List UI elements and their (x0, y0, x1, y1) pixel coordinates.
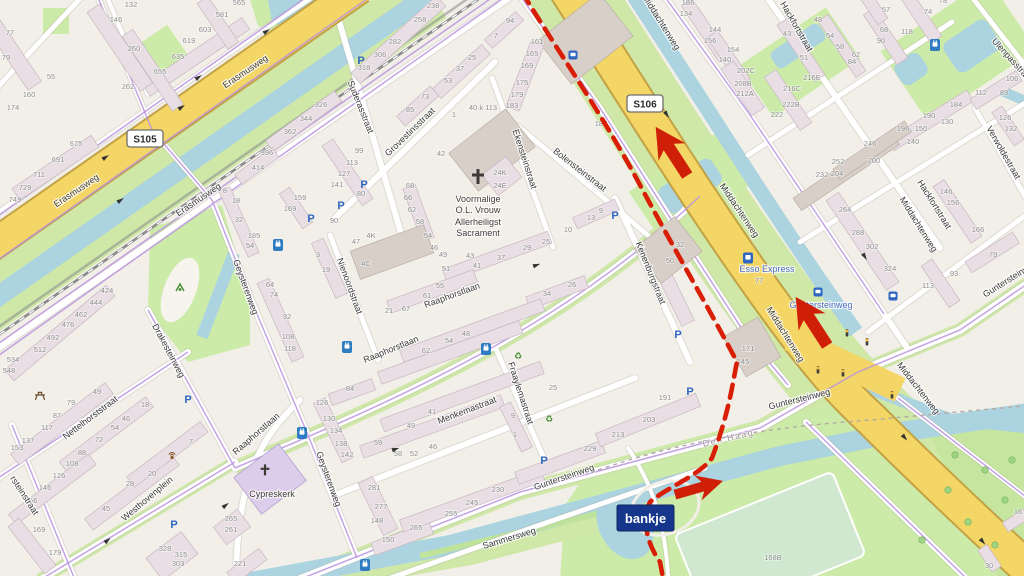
house-number: 55 (436, 281, 444, 290)
house-number: 41 (473, 261, 481, 270)
house-number: 144 (709, 25, 722, 34)
house-number: 619 (183, 36, 196, 45)
house-number: 34 (543, 289, 551, 298)
parking-icon: P (540, 455, 547, 467)
charging-plug (345, 344, 350, 348)
playground-icon-dot (179, 288, 182, 291)
house-number: 156 (704, 36, 717, 45)
shield-text: S106 (633, 100, 657, 111)
house-number: 179 (49, 548, 62, 557)
traffic-light-lamp (866, 339, 869, 342)
house-number: 255 (445, 509, 458, 518)
charging-prong (279, 240, 280, 242)
house-number: 324 (884, 264, 897, 273)
traffic-light-icon (817, 366, 820, 374)
bankje-label-text: bankje (625, 511, 666, 526)
charging-station-icon (360, 559, 370, 571)
tree-icon (952, 452, 958, 458)
house-number: 216C (783, 84, 802, 93)
house-number: 77 (6, 28, 14, 37)
house-number: 154 (727, 45, 740, 54)
house-number: 47 (352, 237, 360, 246)
house-number: 9 (599, 206, 603, 215)
house-number: 117 (41, 423, 53, 432)
house-number: 37 (497, 253, 505, 262)
house-number: 221 (234, 559, 247, 568)
house-number: 565 (233, 0, 246, 7)
house-number: 729 (19, 183, 32, 192)
charging-prong (300, 428, 301, 430)
parking-icon: P (360, 179, 367, 191)
house-number: 260 (128, 44, 141, 53)
house-number: 476 (62, 320, 75, 329)
house-number: 72 (95, 435, 103, 444)
house-number: 46 (429, 442, 437, 451)
house-number: 137 (22, 436, 35, 445)
charging-prong (484, 344, 485, 346)
house-number: 169 (284, 204, 297, 213)
house-number: 196 (897, 124, 910, 133)
house-number: 140 (719, 55, 732, 64)
house-number: 179 (511, 90, 524, 99)
house-number: 140 (907, 137, 920, 146)
house-number: 281 (368, 483, 381, 492)
map-canvas[interactable]: Den Haag 5655816036196356556756917117297… (0, 0, 1024, 576)
charging-station-icon (481, 343, 491, 355)
house-number: 126 (316, 398, 329, 407)
house-number: 362 (284, 127, 297, 136)
house-number: 153 (11, 443, 24, 452)
traffic-light-icon (866, 338, 869, 346)
house-number: 113 (346, 158, 358, 167)
charging-plug (276, 242, 281, 246)
house-number: 59 (374, 438, 382, 447)
house-number: 258 (414, 15, 427, 24)
house-number: 29 (523, 243, 531, 252)
house-number: 183 (506, 101, 519, 110)
house-number: 50 (666, 256, 674, 265)
house-number: 99 (355, 146, 363, 155)
house-number: 88 (78, 448, 86, 457)
house-number: 174 (7, 103, 20, 112)
house-number: 77 (755, 276, 763, 285)
house-number: 138 (335, 439, 348, 448)
house-number: 166 (972, 225, 985, 234)
house-number: 444 (90, 298, 103, 307)
house-number: 168B (764, 553, 782, 562)
house-number: 46 (122, 414, 130, 423)
house-number: 282 (389, 37, 402, 46)
house-number: 74 (270, 290, 278, 299)
house-number: 25 (542, 237, 550, 246)
house-number: 25 (468, 53, 476, 62)
house-number: 58 (416, 217, 424, 226)
house-number: 691 (52, 155, 65, 164)
house-number: 675 (70, 139, 83, 148)
house-number: 261 (225, 525, 238, 534)
charging-plug (933, 42, 938, 46)
fuel-station-icon (743, 253, 753, 264)
house-number: 21 (385, 306, 393, 315)
tree-icon (992, 542, 998, 548)
house-number: 462 (75, 310, 88, 319)
house-number: 344 (300, 114, 313, 123)
house-number: 175 (516, 78, 529, 87)
house-number: 24K (493, 168, 506, 177)
house-number: 93 (950, 269, 958, 278)
house-number: 79 (989, 250, 997, 259)
house-number: 37 (456, 64, 464, 73)
house-number: 265 (410, 523, 423, 532)
house-number: 142 (341, 450, 354, 459)
house-number: 62 (408, 205, 416, 214)
charging-plug (363, 562, 368, 566)
route-shield-s105: S105 (127, 130, 163, 147)
house-number: 200 (868, 156, 881, 165)
house-number: 208B (734, 79, 752, 88)
church-name-line: O.L. Vrouw (456, 205, 501, 215)
parking-icon: P (170, 519, 177, 531)
parking-icon: P (674, 329, 681, 341)
bus-glyph (890, 294, 895, 297)
charging-prong (487, 344, 488, 346)
house-number: 78 (939, 0, 947, 5)
house-number: 57 (882, 5, 890, 14)
house-number: 90 (330, 216, 338, 225)
house-number: 51 (442, 264, 450, 273)
house-number: 51 (800, 53, 808, 62)
tree-icon (945, 487, 951, 493)
house-number: 229 (584, 444, 597, 453)
house-number: 48 (462, 329, 470, 338)
parking-icon: P (611, 210, 618, 222)
house-number: 16 (1014, 507, 1022, 516)
house-number: 68 (406, 181, 414, 190)
house-number: 40 k 113 (469, 103, 497, 112)
house-number: 25 (549, 383, 557, 392)
house-number: 62 (422, 346, 430, 355)
house-number: 216E (803, 73, 821, 82)
house-number: 43 (466, 251, 474, 260)
house-number: 202C (737, 66, 756, 75)
house-number: 49 (407, 421, 415, 430)
house-number: 118 (901, 27, 913, 36)
house-number: 326 (315, 100, 328, 109)
house-number: 19 (322, 265, 330, 274)
house-number: 87 (53, 411, 61, 420)
house-number: 190 (923, 111, 936, 120)
parking-icon: P (307, 213, 314, 225)
house-number: 204 (831, 169, 844, 178)
tree-icon (982, 467, 988, 473)
house-number: 222 (771, 110, 784, 119)
house-number: 548 (3, 366, 16, 375)
traffic-light-icon (846, 329, 849, 337)
house-number: 24E (493, 181, 506, 190)
house-number: 79 (67, 398, 75, 407)
bus-stop-icon (889, 292, 898, 301)
house-number: 49 (439, 250, 447, 259)
map-screenshot: Den Haag 5655816036196356556756917117297… (0, 0, 1024, 576)
house-number: 165 (526, 49, 539, 58)
recycling-icon: ♻ (545, 414, 553, 424)
house-number: 10 (564, 225, 572, 234)
house-number: 150 (915, 124, 928, 133)
house-number: 66 (404, 193, 412, 202)
house-number: 132 (125, 0, 138, 9)
house-number: 94 (506, 16, 514, 25)
house-number: 84 (346, 384, 354, 393)
house-number: 150 (382, 535, 395, 544)
house-number: 54 (445, 336, 453, 345)
charging-prong (363, 560, 364, 562)
charging-prong (348, 342, 349, 344)
tree-icon (1009, 457, 1015, 463)
house-number: 262 (122, 82, 135, 91)
house-number: 246 (864, 139, 877, 148)
house-number: 84 (848, 57, 856, 66)
house-number: 213 (612, 430, 625, 439)
house-number: 264 (839, 205, 852, 214)
traffic-light-lamp (817, 367, 820, 370)
house-number: 148 (371, 516, 384, 525)
house-number: 635 (172, 52, 185, 61)
house-number: 53 (444, 76, 452, 85)
charging-station-icon (297, 427, 307, 439)
house-number: 160 (23, 90, 36, 99)
house-number: 146 (940, 187, 953, 196)
house-number: 161 (531, 37, 544, 46)
church-name-line: Sacrament (456, 228, 500, 238)
traffic-light-icon (891, 391, 894, 399)
house-number: 534 (7, 355, 20, 364)
charging-station-icon (342, 341, 352, 353)
house-number: 328 (159, 544, 172, 553)
charging-plug (300, 430, 305, 434)
house-number: 49 (93, 387, 101, 396)
house-number: 45 (102, 504, 110, 513)
bus-glyph (815, 290, 820, 293)
house-number: 203 (643, 415, 656, 424)
house-number: 134 (680, 9, 693, 18)
church-name-line: Allerheiligst (455, 217, 502, 227)
house-number: 130 (941, 117, 954, 126)
shield-text: S105 (133, 135, 157, 146)
tree-icon (1002, 497, 1008, 503)
house-number: 159 (294, 193, 307, 202)
house-number: 146 (39, 483, 52, 492)
house-number: 7 (494, 31, 498, 40)
traffic-light-lamp (846, 330, 849, 333)
house-number: 54 (246, 241, 254, 250)
house-number: 41 (428, 407, 436, 416)
house-number: 89 (1000, 88, 1008, 97)
house-number: 126 (999, 113, 1012, 122)
house-number: 277 (375, 502, 388, 511)
house-number: 13 (587, 213, 595, 222)
house-number: 52 (410, 449, 418, 458)
house-number: 424 (101, 286, 114, 295)
bus-glyph (570, 53, 575, 56)
house-number: 749 (9, 195, 22, 204)
charging-prong (303, 428, 304, 430)
traffic-light-lamp (842, 370, 845, 373)
house-number: 74 (924, 7, 932, 16)
house-number: 68 (880, 25, 888, 34)
house-number: 230 (492, 485, 505, 494)
house-number: 64 (266, 280, 274, 289)
house-number: 30 (985, 561, 993, 570)
parking-icon: P (337, 200, 344, 212)
house-number: 315 (175, 550, 188, 559)
house-number: 141 (331, 180, 344, 189)
house-number: 222B (782, 100, 800, 109)
house-number: 492 (47, 333, 60, 342)
house-number: 1 (513, 430, 517, 439)
recycling-icon: ♻ (514, 351, 522, 361)
house-number: 54 (826, 31, 834, 40)
charging-prong (366, 560, 367, 562)
house-number: 20 (148, 469, 156, 478)
house-number: 126 (53, 471, 66, 480)
house-number: 169 (33, 525, 46, 534)
house-number: 191 (659, 393, 672, 402)
house-number: 655 (154, 67, 167, 76)
house-number: 118 (284, 344, 296, 353)
house-number: 132 (1005, 124, 1018, 133)
charging-station-icon (273, 239, 283, 251)
bankje-annotation: bankje (617, 505, 674, 531)
house-number: 302 (866, 242, 879, 251)
house-number: 113 (922, 281, 934, 290)
house-number: 1 (452, 110, 456, 119)
house-number: 581 (216, 10, 229, 19)
house-number: 303 (172, 559, 185, 568)
house-number: 414 (252, 163, 265, 172)
charging-station-icon (930, 39, 940, 51)
house-number: 108 (66, 459, 79, 468)
house-number: 85 (406, 105, 414, 114)
house-number: 112 (975, 88, 987, 97)
house-number: 28 (126, 479, 134, 488)
house-number: 3 (316, 250, 320, 259)
tree-icon (919, 537, 925, 543)
house-number: 26 (568, 280, 576, 289)
house-number: 42 (437, 149, 445, 158)
house-number: 212A (736, 89, 754, 98)
house-number: 512 (34, 345, 47, 354)
parking-icon: P (686, 386, 693, 398)
house-number: 238 (427, 1, 440, 10)
church-name-line: Voormalige (455, 194, 500, 204)
tree-icon (965, 519, 971, 525)
house-number: 245 (466, 498, 479, 507)
house-number: 90 (877, 36, 885, 45)
charging-prong (276, 240, 277, 242)
house-number: 171 (742, 344, 755, 353)
house-number: 711 (33, 170, 45, 179)
house-number: 32 (676, 240, 684, 249)
house-number: 130 (323, 414, 336, 423)
house-number: 8 (223, 186, 227, 195)
house-number: 46 (430, 243, 438, 252)
house-number: 169 (521, 61, 534, 70)
charging-prong (345, 342, 346, 344)
house-number: 48 (814, 15, 822, 24)
parking-icon: P (184, 394, 191, 406)
house-number: 4C (361, 259, 371, 268)
house-number: 603 (199, 25, 212, 34)
parking-icon: P (357, 55, 364, 67)
charging-plug (484, 346, 489, 350)
house-number: 127 (338, 169, 351, 178)
route-shield-s106: S106 (627, 95, 663, 112)
house-number: 43 (783, 29, 791, 38)
artwork-base (170, 456, 173, 459)
house-number: 73 (421, 92, 429, 101)
house-number: 108 (282, 332, 295, 341)
house-number: 9 (511, 411, 515, 420)
poi-label: Esso Express (739, 264, 795, 274)
house-number: 55 (47, 72, 55, 81)
house-number: 185 (248, 231, 261, 240)
charging-prong (933, 40, 934, 42)
bus-stop-icon (569, 51, 578, 60)
house-number: 306 (374, 50, 387, 59)
house-number: 186 (682, 0, 695, 7)
house-number: 79 (2, 53, 10, 62)
house-number: 252 (832, 157, 845, 166)
cypreskerk-label: Cypreskerk (249, 489, 295, 499)
traffic-light-lamp (891, 392, 894, 395)
house-number: 265 (225, 514, 238, 523)
fuel-pump (745, 255, 750, 260)
house-number: 146 (110, 15, 123, 24)
house-number: 18 (232, 196, 240, 205)
house-number: 288 (852, 228, 865, 237)
house-number: 4K (366, 231, 375, 240)
house-number: 18 (141, 400, 149, 409)
house-number: 32 (235, 215, 243, 224)
house-number: 156 (947, 198, 960, 207)
house-number: 58 (836, 42, 844, 51)
house-number: 54 (424, 231, 432, 240)
house-number: 67 (402, 304, 410, 313)
house-number: 232 (816, 170, 829, 179)
house-number: 184 (950, 100, 963, 109)
house-number: 92 (283, 312, 291, 321)
house-number: 106 (1006, 74, 1019, 83)
charging-prong (936, 40, 937, 42)
house-number: 396 (261, 148, 274, 157)
house-number: 54 (111, 423, 119, 432)
house-number: 7 (189, 437, 193, 446)
traffic-light-icon (842, 369, 845, 377)
bus-stop-icon (814, 288, 823, 297)
house-number: 134 (330, 426, 343, 435)
